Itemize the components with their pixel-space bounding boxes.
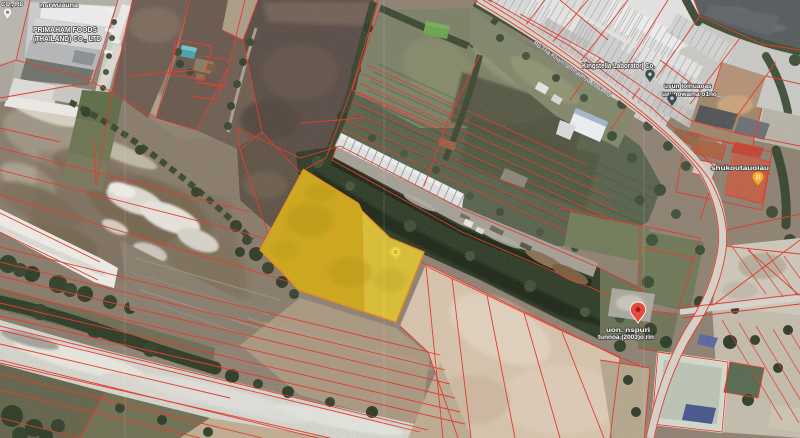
svg-text:(THAILAND) CO., LTD: (THAILAND) CO., LTD: [33, 36, 101, 43]
svg-text:Kingstella Laborator| Co.: Kingstella Laborator| Co.: [582, 63, 655, 70]
svg-text:tunnoa (2003)o.rin: tunnoa (2003)o.rin: [598, 334, 654, 341]
svg-text:nsrwuauna: nsrwuauna: [40, 3, 79, 9]
svg-text:CO., RD: CO., RD: [1, 2, 24, 8]
svg-text:PRIMAHAM FOODS: PRIMAHAM FOODS: [33, 27, 97, 34]
svg-text:uon. nspuri: uon. nspuri: [606, 327, 650, 334]
svg-text:shukoutauoiau: shukoutauoiau: [711, 165, 769, 172]
svg-text:usun loinuaoas: usun loinuaoas: [664, 83, 712, 90]
